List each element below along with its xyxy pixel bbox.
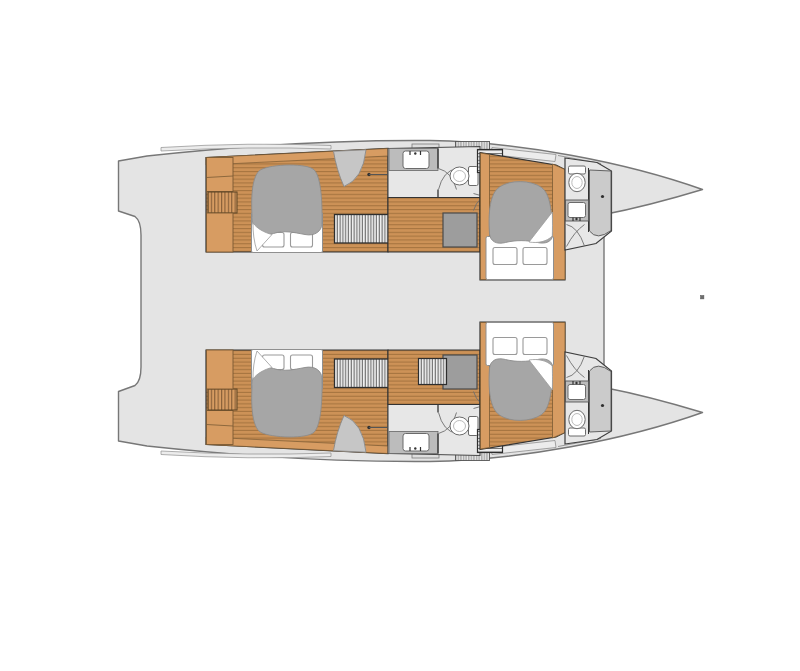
toilet xyxy=(450,167,478,186)
double-bed xyxy=(486,182,554,280)
duvet xyxy=(252,165,322,235)
companionway-steps xyxy=(208,192,237,213)
shower-pan xyxy=(590,170,612,236)
faucet-dot xyxy=(414,152,416,154)
pillow xyxy=(523,248,547,265)
toilet xyxy=(569,166,586,192)
shower-pad xyxy=(443,213,477,247)
companionway-louver-extra xyxy=(419,359,447,385)
double-bed xyxy=(252,165,323,252)
shower-drain xyxy=(601,195,604,198)
wardrobe xyxy=(207,158,234,192)
sink xyxy=(568,203,586,218)
cabinet xyxy=(207,213,234,252)
faucet-dot xyxy=(575,218,577,220)
aft-cabin xyxy=(206,149,415,253)
catamaran-deck-plan xyxy=(0,0,800,671)
wardrobe xyxy=(553,164,566,280)
forward-head xyxy=(565,158,612,250)
pillow xyxy=(493,248,517,265)
deck-plan-figure xyxy=(0,0,800,671)
forward-cabin xyxy=(480,153,565,281)
toilet-bowl xyxy=(569,173,585,191)
toilet-bowl xyxy=(450,167,469,185)
toilet-tank xyxy=(469,167,479,186)
deck-fitting-dot xyxy=(701,296,704,299)
